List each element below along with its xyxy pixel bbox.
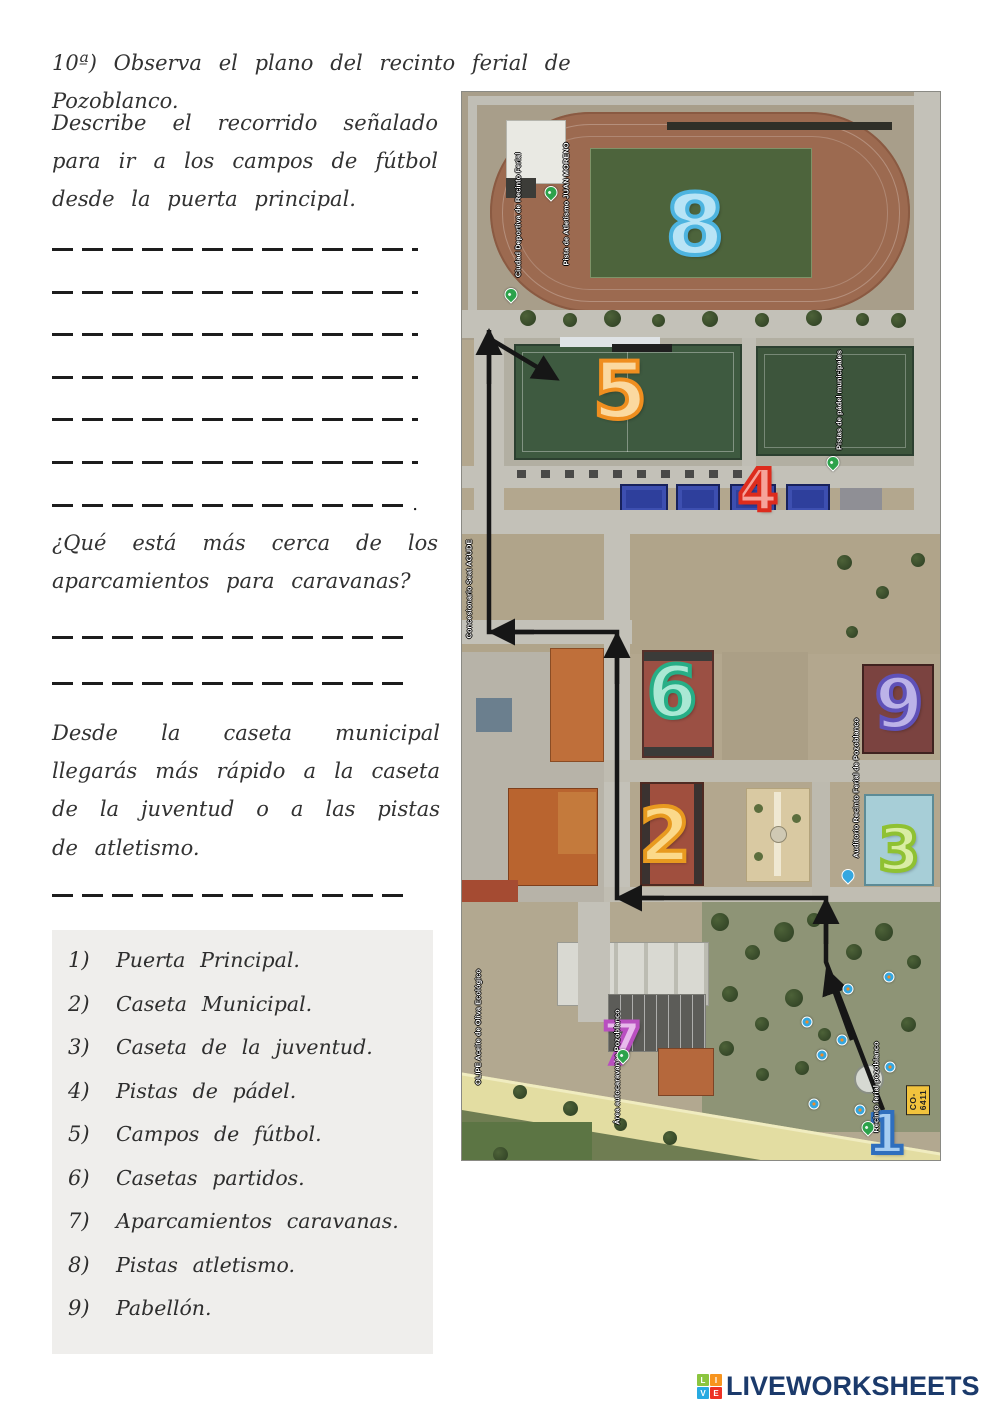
legend-item-label: Pabellón. bbox=[116, 1296, 212, 1320]
legend-item-label: Pistas de pádel. bbox=[116, 1079, 296, 1103]
legend-item-label: Casetas partidos. bbox=[116, 1166, 305, 1190]
answer-line-last[interactable]: . bbox=[52, 503, 418, 507]
answer-line[interactable] bbox=[52, 461, 418, 464]
photo-marker-icon bbox=[855, 1105, 866, 1116]
map-number-6: 6 bbox=[647, 656, 697, 728]
legend-item-number: 3) bbox=[68, 1035, 116, 1059]
logo-tile-e: E bbox=[710, 1387, 722, 1399]
legend-item: 7)Aparcamientos caravanas. bbox=[68, 1209, 433, 1253]
road-badge: CO-6411 bbox=[906, 1085, 930, 1115]
legend-item: 4)Pistas de pádel. bbox=[68, 1079, 433, 1123]
legend-list: 1)Puerta Principal.2)Caseta Municipal.3)… bbox=[68, 948, 433, 1340]
map-number-3: 3 bbox=[878, 820, 920, 880]
photo-marker-icon bbox=[809, 1099, 820, 1110]
map-number-2: 2 bbox=[639, 799, 691, 873]
legend-item: 5)Campos de fútbol. bbox=[68, 1122, 433, 1166]
answer-line[interactable] bbox=[52, 418, 418, 421]
question-1-text: Describe el recorrido señalado para ir a… bbox=[52, 104, 438, 219]
map-label: Recinto ferial pozoblanco bbox=[872, 1041, 881, 1132]
logo-tiles: LIVE bbox=[697, 1374, 722, 1399]
legend-item: 2)Caseta Municipal. bbox=[68, 992, 433, 1036]
answer-lines-q3 bbox=[52, 894, 412, 897]
question-2-text: ¿Qué está más cerca de los aparcamientos… bbox=[52, 524, 438, 600]
legend-item-label: Puerta Principal. bbox=[116, 948, 300, 972]
map-label: Pista de Atletismo JUAN MORENO bbox=[562, 142, 571, 265]
line-end-period: . bbox=[412, 503, 418, 507]
legend-item-number: 9) bbox=[68, 1296, 116, 1320]
answer-lines-q2 bbox=[52, 636, 412, 685]
photo-marker-icon bbox=[884, 972, 895, 983]
logo-tile-l: L bbox=[697, 1374, 709, 1386]
brand-text: LIVEWORKSHEETS bbox=[726, 1371, 980, 1402]
map-label: Pistas de pádel municipales bbox=[835, 350, 844, 450]
liveworksheets-logo: LIVE LIVEWORKSHEETS bbox=[697, 1371, 980, 1402]
legend-item-number: 4) bbox=[68, 1079, 116, 1103]
legend-item-number: 2) bbox=[68, 992, 116, 1016]
worksheet-page: 10ª) Observa el plano del recinto ferial… bbox=[0, 0, 1000, 1413]
answer-line[interactable] bbox=[52, 248, 418, 251]
legend-item-number: 7) bbox=[68, 1209, 116, 1233]
map-number-9: 9 bbox=[875, 669, 924, 739]
answer-line[interactable] bbox=[52, 333, 418, 336]
legend-item-label: Pistas atletismo. bbox=[116, 1253, 295, 1277]
legend-item-number: 5) bbox=[68, 1122, 116, 1146]
answer-line[interactable] bbox=[52, 682, 412, 685]
photo-marker-icon bbox=[802, 1017, 813, 1028]
legend-item-label: Aparcamientos caravanas. bbox=[116, 1209, 399, 1233]
photo-marker-icon bbox=[817, 1050, 828, 1061]
legend-item: 6)Casetas partidos. bbox=[68, 1166, 433, 1210]
map-label: Área autocaravanas Pozoblanco bbox=[613, 1009, 622, 1124]
map-number-5: 5 bbox=[593, 353, 647, 431]
answer-line[interactable] bbox=[52, 376, 418, 379]
question-3-text: Desde la caseta municipal llegarás más r… bbox=[52, 714, 440, 867]
map-label: Ciudad Deportiva de Recinto Ferial bbox=[514, 153, 523, 278]
map-image: CO-6411 123456789 Ciudad Deportiva de Re… bbox=[462, 92, 940, 1160]
answer-line[interactable] bbox=[52, 636, 412, 639]
legend-item-number: 6) bbox=[68, 1166, 116, 1190]
legend-item: 3)Caseta de la juventud. bbox=[68, 1035, 433, 1079]
photo-marker-icon bbox=[843, 984, 854, 995]
map-label: Concesionario Seat AGUDE bbox=[465, 540, 474, 639]
map-label: Auditorio Recinto Ferial de Pozoblanco bbox=[852, 718, 861, 858]
legend-item-number: 8) bbox=[68, 1253, 116, 1277]
legend-item-number: 1) bbox=[68, 948, 116, 972]
logo-tile-v: V bbox=[697, 1387, 709, 1399]
answer-line[interactable] bbox=[52, 894, 412, 897]
legend-item: 1)Puerta Principal. bbox=[68, 948, 433, 992]
legend-item-label: Caseta de la juventud. bbox=[116, 1035, 373, 1059]
map-number-4: 4 bbox=[738, 461, 778, 519]
map-label: OLIPE Aceite de Oliva Ecológico bbox=[474, 969, 483, 1085]
legend-item: 9)Pabellón. bbox=[68, 1296, 433, 1340]
photo-marker-icon bbox=[837, 1035, 848, 1046]
logo-tile-i: I bbox=[710, 1374, 722, 1386]
legend-box: 1)Puerta Principal.2)Caseta Municipal.3)… bbox=[52, 930, 433, 1354]
legend-item-label: Caseta Municipal. bbox=[116, 992, 312, 1016]
photo-marker-icon bbox=[885, 1062, 896, 1073]
map-number-8: 8 bbox=[666, 183, 724, 267]
legend-item-label: Campos de fútbol. bbox=[116, 1122, 322, 1146]
answer-lines-q1: . bbox=[52, 248, 418, 507]
answer-line[interactable] bbox=[52, 291, 418, 294]
legend-item: 8)Pistas atletismo. bbox=[68, 1253, 433, 1297]
